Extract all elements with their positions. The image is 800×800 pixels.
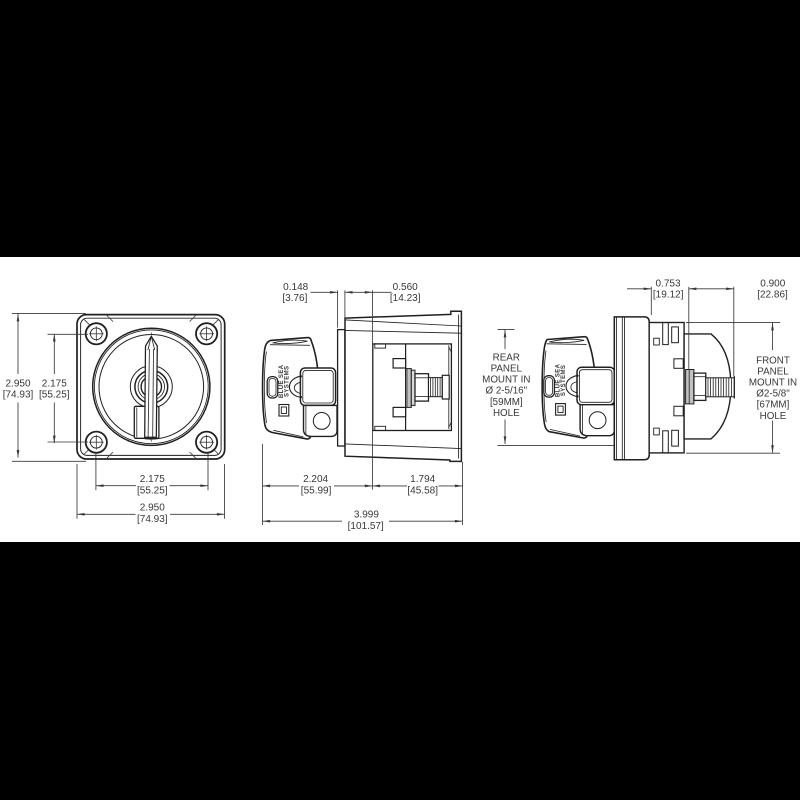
svg-text:2.950: 2.950: [140, 503, 165, 514]
svg-text:HOLE: HOLE: [760, 411, 787, 422]
svg-text:2.175: 2.175: [42, 378, 67, 389]
svg-text:SYSTEMS: SYSTEMS: [561, 365, 567, 396]
svg-text:3.999: 3.999: [354, 510, 379, 521]
svg-text:Ø2-5/8": Ø2-5/8": [756, 389, 790, 400]
svg-text:[55.25]: [55.25]: [39, 390, 70, 401]
svg-text:[59MM]: [59MM]: [490, 397, 523, 408]
svg-text:PANEL: PANEL: [491, 364, 523, 375]
svg-text:PANEL: PANEL: [757, 366, 789, 377]
svg-text:[55.25]: [55.25]: [137, 485, 168, 496]
svg-text:[74.93]: [74.93]: [3, 390, 34, 401]
svg-text:MOUNT IN: MOUNT IN: [482, 375, 530, 386]
svg-text:HOLE: HOLE: [493, 408, 520, 419]
svg-text:[22.86]: [22.86]: [757, 290, 788, 301]
svg-text:[14.23]: [14.23]: [390, 293, 421, 304]
svg-text:[45.58]: [45.58]: [407, 486, 438, 497]
svg-text:0.753: 0.753: [655, 279, 680, 290]
svg-text:1.794: 1.794: [410, 474, 435, 485]
svg-text:REAR: REAR: [493, 352, 520, 363]
svg-text:[3.76]: [3.76]: [282, 293, 307, 304]
svg-text:[67MM]: [67MM]: [757, 400, 790, 411]
svg-text:2.204: 2.204: [303, 474, 328, 485]
svg-text:2.175: 2.175: [140, 474, 165, 485]
svg-text:[101.57]: [101.57]: [348, 521, 384, 532]
svg-text:SYSTEMS: SYSTEMS: [284, 366, 290, 397]
svg-text:0.560: 0.560: [393, 282, 418, 293]
svg-text:0.148: 0.148: [283, 282, 308, 293]
svg-text:[55.99]: [55.99]: [301, 486, 332, 497]
svg-text:[19.12]: [19.12]: [653, 290, 684, 301]
svg-text:FRONT: FRONT: [756, 355, 790, 366]
svg-text:[74.93]: [74.93]: [137, 514, 168, 525]
svg-text:2.950: 2.950: [5, 378, 30, 389]
svg-text:Ø 2-5/16": Ø 2-5/16": [485, 386, 527, 397]
svg-text:0.900: 0.900: [760, 279, 785, 290]
svg-text:MOUNT IN: MOUNT IN: [749, 378, 797, 389]
